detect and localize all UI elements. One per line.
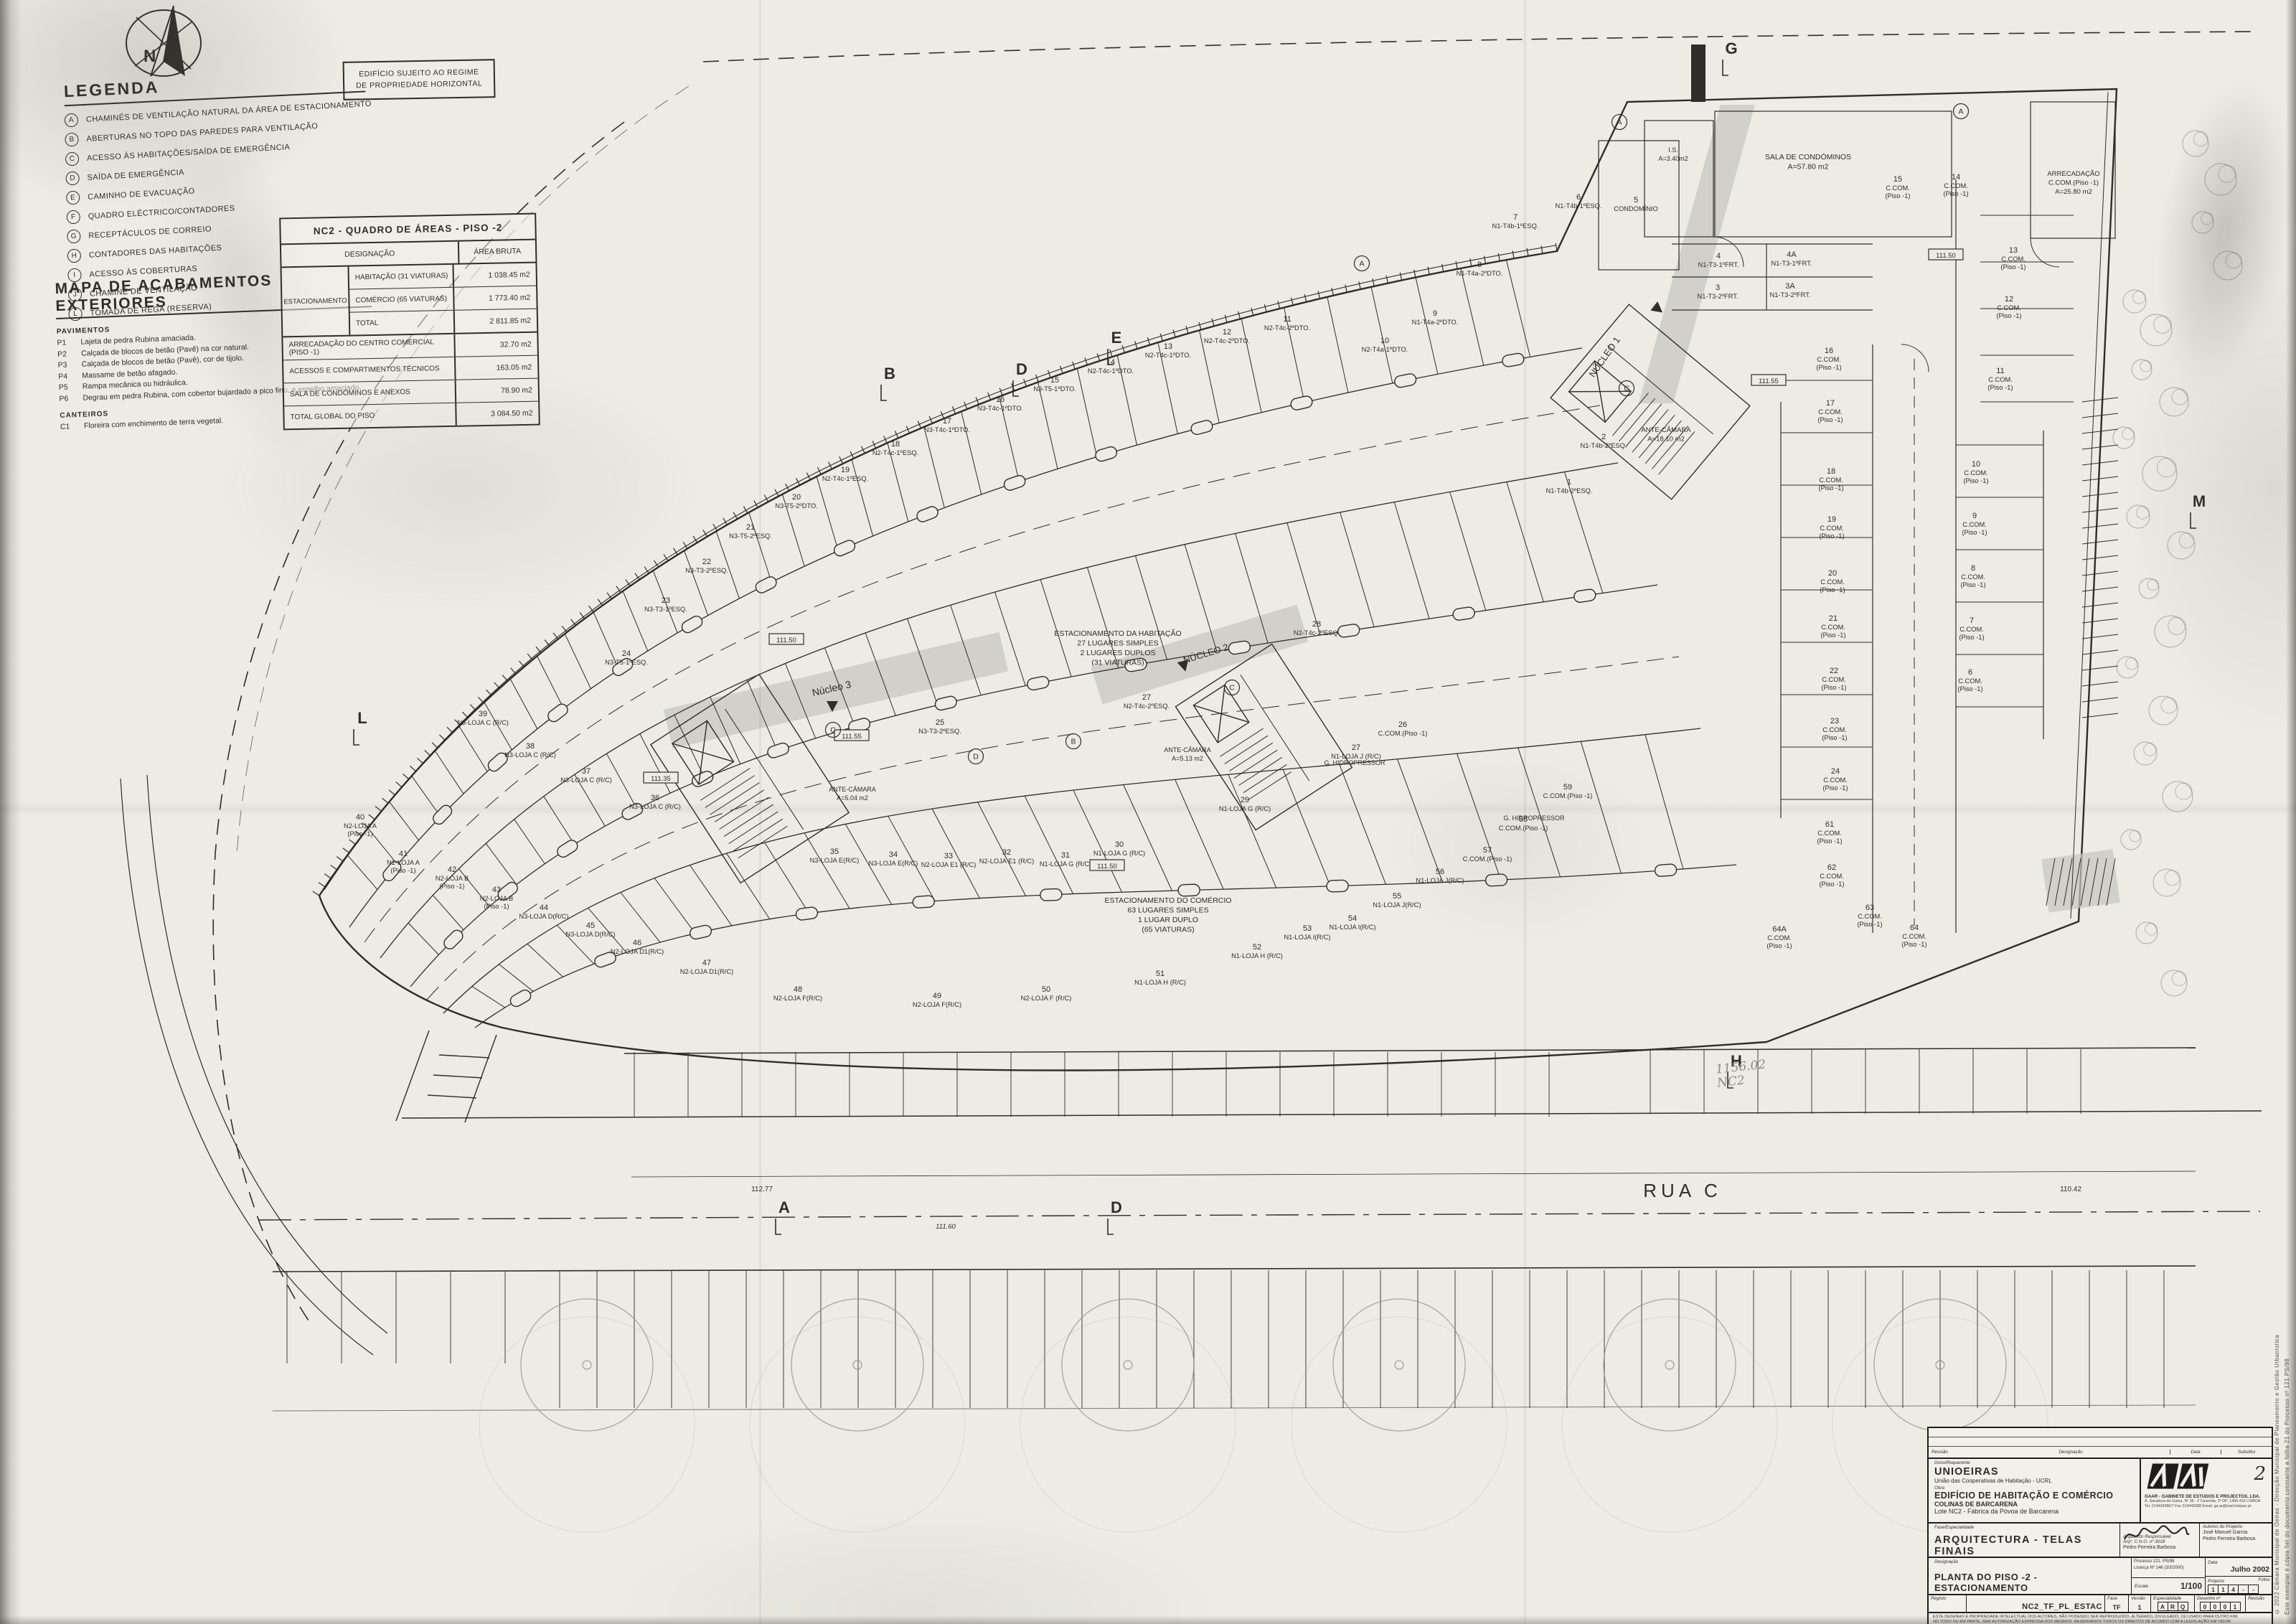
svg-text:C.COM.: C.COM. xyxy=(1858,913,1882,920)
legend-key-icon: H xyxy=(67,248,81,263)
copyright-disclaimer: ESTE DESENHO É PROPRIEDADE INTELECTUAL D… xyxy=(1929,1613,2272,1624)
svg-text:C.COM.: C.COM. xyxy=(1886,184,1910,192)
svg-text:42: 42 xyxy=(448,865,456,874)
stall-label: 56N1-LOJA J(R/C) xyxy=(1416,868,1464,884)
stall-label: 4AN1-T3-1ºFRT. xyxy=(1772,250,1812,267)
legend-item-text: CONTADORES DAS HABITAÇÕES xyxy=(89,243,222,259)
section-marker: G xyxy=(1723,39,1738,75)
responsavel-cell: Arquitecto Responsável Arqº, C.N.O. nº 3… xyxy=(2119,1524,2199,1557)
svg-text:N2-T4c-1ºDTO.: N2-T4c-1ºDTO. xyxy=(1088,367,1134,375)
stall-label: 50N2-LOJA F (R/C) xyxy=(1021,985,1072,1002)
revisao-mini-label: Revisão xyxy=(2248,1596,2269,1601)
svg-text:(Piso -1): (Piso -1) xyxy=(1820,586,1845,593)
plan-text: ANTE-CÂMARAA=18.10 m2 xyxy=(1641,426,1691,443)
stall-label: 41N2-LOJA A(Piso -1) xyxy=(387,850,420,874)
stall-label: 42N2-LOJA B(Piso -1) xyxy=(436,865,469,890)
desenho-label: Desenho nº xyxy=(2197,1596,2243,1601)
svg-text:N2-T4c-2ºESQ.: N2-T4c-2ºESQ. xyxy=(1124,703,1170,710)
svg-text:(65 VIATURAS): (65 VIATURAS) xyxy=(1142,926,1194,934)
svg-text:N2-T4c-2ºDTO.: N2-T4c-2ºDTO. xyxy=(1204,337,1250,344)
spot-elevation: 111.55 xyxy=(834,730,869,741)
svg-text:18: 18 xyxy=(1827,467,1835,476)
svg-text:31: 31 xyxy=(1061,851,1070,860)
svg-text:3: 3 xyxy=(1716,283,1720,292)
svg-text:N1-T4b-2ºESQ.: N1-T4b-2ºESQ. xyxy=(1581,442,1627,449)
svg-text:2: 2 xyxy=(1601,433,1606,441)
legend-key-icon: A xyxy=(64,113,78,128)
svg-text:40: 40 xyxy=(356,813,364,822)
spot-elevation: 111.50 xyxy=(769,634,804,644)
stall-label: 31N1-LOJA G (R/C) xyxy=(1040,851,1091,868)
stall-label: 8N1-T4a-2ºDTO. xyxy=(1457,261,1503,277)
obra-line1: EDIFÍCIO DE HABITAÇÃO E COMÉRCIO xyxy=(1934,1491,2134,1501)
svg-text:62: 62 xyxy=(1827,863,1836,872)
svg-text:54: 54 xyxy=(1348,914,1357,923)
stall-label: 21N3-T5-2ºESQ. xyxy=(729,523,772,540)
svg-text:A=57.80 m2: A=57.80 m2 xyxy=(1788,163,1829,172)
client-and-project: Dono/Requerente UNIOEIRAS União das Coop… xyxy=(1929,1459,2140,1522)
svg-text:34: 34 xyxy=(889,850,898,859)
svg-text:N2-T4c-1ºDTO.: N2-T4c-1ºDTO. xyxy=(1145,352,1191,359)
svg-text:1: 1 xyxy=(1567,478,1571,487)
svg-text:111.55: 111.55 xyxy=(1759,377,1779,385)
svg-text:(Piso -1): (Piso -1) xyxy=(1960,581,1985,588)
svg-text:N1-T4b-1ºESQ.: N1-T4b-1ºESQ. xyxy=(1556,202,1602,210)
svg-text:A=18.10 m2: A=18.10 m2 xyxy=(1647,436,1685,443)
legend-ref-circle: D xyxy=(969,749,984,764)
svg-text:48: 48 xyxy=(794,985,802,994)
svg-text:64A: 64A xyxy=(1772,925,1787,934)
stall-label: 23C.COM.(Piso -1) xyxy=(1822,717,1847,741)
svg-text:C.COM.: C.COM. xyxy=(1997,304,2021,311)
svg-text:55: 55 xyxy=(1393,892,1401,901)
svg-text:M: M xyxy=(2193,492,2206,510)
svg-text:19: 19 xyxy=(841,466,850,474)
street-and-sidewalk xyxy=(258,1048,2262,1411)
client-name: UNIOEIRAS xyxy=(1934,1466,2134,1478)
stall-label: 34N3-LOJA E(R/C) xyxy=(869,850,918,867)
svg-text:ESTACIONAMENTO DA HABITAÇÃO: ESTACIONAMENTO DA HABITAÇÃO xyxy=(1054,629,1181,638)
svg-text:C.COM.(Piso -1): C.COM.(Piso -1) xyxy=(1499,825,1548,832)
plan-text: G. HIDROPRESSOR xyxy=(1324,759,1385,766)
svg-text:6: 6 xyxy=(1968,668,1972,677)
obra-label: Obra xyxy=(1934,1485,2134,1491)
north-label: N xyxy=(143,47,156,66)
signature xyxy=(2122,1525,2191,1544)
svg-text:A: A xyxy=(778,1198,790,1216)
stall-label: 64AC.COM.(Piso -1) xyxy=(1766,925,1792,949)
legend-ref-circle: C xyxy=(1619,381,1634,396)
versao-value: 1 xyxy=(2131,1604,2148,1611)
svg-text:C.COM.: C.COM. xyxy=(1958,677,1982,685)
svg-text:N1-T4b-2ºESQ.: N1-T4b-2ºESQ. xyxy=(1546,487,1593,494)
licenca: Licença Nº 146 (3/3/2000) xyxy=(2134,1565,2203,1572)
client-subtitle: União das Cooperativas de Habitação - UC… xyxy=(1934,1478,2134,1484)
svg-text:C.COM.: C.COM. xyxy=(1817,830,1842,837)
disclaimer-line2: NO TODO OU EM PARTE, SEM AUTORIZAÇÃO EXP… xyxy=(1933,1620,2267,1624)
svg-text:37: 37 xyxy=(582,767,591,776)
stall-label: 24C.COM.(Piso -1) xyxy=(1822,767,1848,792)
svg-text:50: 50 xyxy=(1042,985,1050,994)
svg-text:10: 10 xyxy=(1380,337,1389,345)
svg-text:N2-LOJA F(R/C): N2-LOJA F(R/C) xyxy=(913,1001,961,1008)
finishes-key: P5 xyxy=(59,382,77,392)
projecto-digit: - xyxy=(2249,1585,2259,1594)
svg-text:N1-T3-1ºFRT.: N1-T3-1ºFRT. xyxy=(1772,260,1812,267)
desenho-digit: 1 xyxy=(2231,1602,2241,1611)
svg-text:N1-T3-2ºFRT.: N1-T3-2ºFRT. xyxy=(1698,293,1739,300)
svg-text:(Piso -1): (Piso -1) xyxy=(390,867,415,874)
svg-text:D: D xyxy=(973,753,979,761)
stall-label: 48N2-LOJA F(R/C) xyxy=(773,985,822,1002)
autor-1: José Manuel Garcia xyxy=(2203,1529,2269,1536)
svg-text:N1-LOJA J(R/C): N1-LOJA J(R/C) xyxy=(1373,901,1421,909)
svg-text:63: 63 xyxy=(1865,903,1874,912)
stall-label: 16N3-T4c-1ºDTO. xyxy=(977,395,1023,412)
projecto-digit: 1 xyxy=(2208,1585,2219,1594)
stall-label: 37N3-LOJA C (R/C) xyxy=(560,767,612,784)
client-label: Dono/Requerente xyxy=(1934,1460,2134,1465)
especialidade-label: Especialidade xyxy=(2153,1596,2192,1601)
svg-text:C.COM.: C.COM. xyxy=(1818,408,1843,416)
svg-text:C.COM.(Piso -1): C.COM.(Piso -1) xyxy=(1378,730,1428,737)
stall-label: 35N3-LOJA E(R/C) xyxy=(810,848,860,864)
svg-text:B: B xyxy=(1071,738,1076,746)
fase-mini-cell: Fase TF xyxy=(2104,1595,2128,1612)
fase-label: Fase/Especialidade xyxy=(1934,1525,2114,1530)
finishes-key: P6 xyxy=(59,393,77,403)
svg-text:51: 51 xyxy=(1156,970,1165,978)
svg-text:45: 45 xyxy=(586,921,595,930)
svg-text:4: 4 xyxy=(1716,252,1721,261)
svg-text:N2-LOJA F(R/C): N2-LOJA F(R/C) xyxy=(773,995,822,1002)
svg-text:N3-T3-2ºESQ.: N3-T3-2ºESQ. xyxy=(685,567,728,574)
folha-label: Folha xyxy=(2258,1577,2269,1582)
svg-text:13: 13 xyxy=(1164,342,1172,351)
rev-col-designacao: Designação xyxy=(1972,1450,2170,1455)
svg-text:N2-LOJA E1 (R/C): N2-LOJA E1 (R/C) xyxy=(921,861,976,868)
svg-text:12: 12 xyxy=(2005,295,2013,304)
svg-text:11: 11 xyxy=(1283,315,1291,324)
espec-digit: Q xyxy=(2178,1602,2188,1611)
surface-parking-bays xyxy=(287,1049,2164,1408)
svg-text:N3-T4c-1ºDTO.: N3-T4c-1ºDTO. xyxy=(977,405,1023,412)
svg-text:N2-LOJA A: N2-LOJA A xyxy=(387,859,420,866)
svg-text:24: 24 xyxy=(1831,767,1840,776)
firm-block: 2 GAAR - GABINETE DE ESTUDOS E PROJECTOS… xyxy=(2140,1459,2272,1522)
legend-key-icon: F xyxy=(66,210,80,225)
stall-label: 44N3-LOJA D(R/C) xyxy=(519,903,568,920)
stall-label: 9N1-T4a-2ºDTO. xyxy=(1412,309,1459,326)
svg-text:ANTE-CÂMARA: ANTE-CÂMARA xyxy=(1164,746,1211,754)
stall-label: 16C.COM.(Piso -1) xyxy=(1816,347,1841,371)
svg-text:N1-LOJA G (R/C): N1-LOJA G (R/C) xyxy=(1040,860,1091,868)
svg-text:23: 23 xyxy=(1830,717,1839,726)
svg-text:N2-T4c-1ºESQ.: N2-T4c-1ºESQ. xyxy=(872,449,918,456)
svg-text:29: 29 xyxy=(1241,796,1249,804)
plan-text: ARRECADAÇÃOC.COM.(Piso -1)A=25.80 m2 xyxy=(2047,170,2099,196)
svg-text:9: 9 xyxy=(1433,309,1437,318)
stall-label: 7N1-T4b-1ºESQ. xyxy=(1492,213,1539,230)
svg-text:(Piso -1): (Piso -1) xyxy=(1901,941,1926,948)
svg-text:39: 39 xyxy=(479,710,487,718)
svg-text:C.COM.: C.COM. xyxy=(1961,573,1985,581)
legend-key-icon: D xyxy=(65,172,80,186)
svg-text:N1-LOJA G (R/C): N1-LOJA G (R/C) xyxy=(1219,805,1271,812)
plan-text: ANTE-CÂMARAA=5.13 m2 xyxy=(1164,746,1211,762)
svg-text:I.S.: I.S. xyxy=(1668,146,1678,154)
svg-text:15: 15 xyxy=(1893,175,1902,184)
row-area: 2 811.85 m2 xyxy=(453,309,537,333)
designacao-cell: Designação PLANTA DO PISO -2 - ESTACIONA… xyxy=(1929,1558,2131,1594)
svg-text:N3-T5-2ºESQ.: N3-T5-2ºESQ. xyxy=(729,532,772,540)
svg-text:27 LUGARES SIMPLES: 27 LUGARES SIMPLES xyxy=(1077,639,1158,648)
svg-text:5: 5 xyxy=(1634,196,1638,205)
finishes-text: Rampa mecânica ou hidráulica. xyxy=(83,378,188,391)
svg-text:N1-T4a-2ºDTO.: N1-T4a-2ºDTO. xyxy=(1457,270,1503,277)
stall-label: 40N2-LOJA A(Piso -1) xyxy=(344,813,377,837)
stall-label: 38N3-LOJA C (R/C) xyxy=(504,742,556,759)
svg-text:C.COM.: C.COM. xyxy=(1959,626,1984,633)
svg-text:N3-LOJA D(R/C): N3-LOJA D(R/C) xyxy=(519,913,568,920)
svg-text:(Piso -1): (Piso -1) xyxy=(1822,784,1848,792)
svg-text:(Piso -1): (Piso -1) xyxy=(1817,416,1843,423)
desenho-cell: Desenho nº 0 0 0 1 xyxy=(2194,1595,2245,1612)
stall-label: 8C.COM.(Piso -1) xyxy=(1960,564,1985,588)
svg-text:G: G xyxy=(1725,39,1737,57)
legend-item-text: CAMINHO DE EVACUAÇÃO xyxy=(88,187,195,201)
svg-text:17: 17 xyxy=(1826,399,1835,408)
svg-text:47: 47 xyxy=(702,959,711,967)
svg-text:A=5.13 m2: A=5.13 m2 xyxy=(1172,755,1203,762)
svg-text:46: 46 xyxy=(633,939,641,947)
svg-text:(Piso -1): (Piso -1) xyxy=(1959,634,1984,641)
svg-text:N1-LOJA H (R/C): N1-LOJA H (R/C) xyxy=(1231,952,1283,959)
row-designacao: HABITAÇÃO (31 VIATURAS) xyxy=(349,265,453,289)
svg-text:N3-LOJA C (R/C): N3-LOJA C (R/C) xyxy=(457,719,509,726)
stall-label: 13C.COM.(Piso -1) xyxy=(2000,246,2026,271)
svg-text:32: 32 xyxy=(1002,848,1011,857)
svg-text:N2-LOJA A: N2-LOJA A xyxy=(344,822,377,830)
svg-text:N1-T4b-1ºESQ.: N1-T4b-1ºESQ. xyxy=(1492,222,1539,230)
stall-label: 14C.COM.(Piso -1) xyxy=(1943,173,1968,197)
svg-text:N2-T4c-2ºESQ.: N2-T4c-2ºESQ. xyxy=(1294,629,1340,637)
stall-label: 11N2-T4c-2ºDTO. xyxy=(1264,315,1310,332)
svg-text:N3-T3-2ºESQ.: N3-T3-2ºESQ. xyxy=(918,728,961,735)
aisle-guides xyxy=(364,405,1679,1000)
table-row: TOTAL2 811.85 m2 xyxy=(350,309,537,335)
svg-text:SALA DE CONDÓMINOS: SALA DE CONDÓMINOS xyxy=(1765,152,1851,161)
svg-text:18: 18 xyxy=(891,440,900,449)
table-row: HABITAÇÃO (31 VIATURAS)1 038.45 m2 xyxy=(349,263,537,290)
plan-text: ESTACIONAMENTO DO COMÉRCIO63 LUGARES SIM… xyxy=(1105,896,1232,934)
svg-text:53: 53 xyxy=(1303,924,1312,933)
stall-label: 61C.COM.(Piso -1) xyxy=(1817,820,1842,845)
section-marker: M xyxy=(2191,492,2206,528)
svg-text:(Piso -1): (Piso -1) xyxy=(1818,484,1843,492)
fase-cell: Fase/Especialidade ARQUITECTURA - TELAS … xyxy=(1929,1524,2119,1557)
stall-label: 12C.COM.(Piso -1) xyxy=(1996,295,2021,319)
spot-elevation: 111.50 xyxy=(1090,860,1124,870)
svg-text:N2-LOJA D1(R/C): N2-LOJA D1(R/C) xyxy=(680,968,733,975)
fase-value: ARQUITECTURA - TELAS FINAIS xyxy=(1934,1534,2114,1557)
svg-text:27: 27 xyxy=(1352,743,1360,752)
svg-text:N1-T4a-2ºDTO.: N1-T4a-2ºDTO. xyxy=(1412,319,1459,326)
svg-text:N3-LOJA C (R/C): N3-LOJA C (R/C) xyxy=(629,803,681,810)
svg-text:59: 59 xyxy=(1563,783,1572,792)
svg-text:E: E xyxy=(1111,329,1122,347)
firm-name: GAAR - GABINETE DE ESTUDOS E PROJECTOS, … xyxy=(2145,1494,2268,1499)
svg-text:19: 19 xyxy=(1827,515,1836,524)
svg-text:N1-T3-2ºFRT.: N1-T3-2ºFRT. xyxy=(1770,291,1811,299)
designacao-value: PLANTA DO PISO -2 - ESTACIONAMENTO xyxy=(1934,1572,2125,1593)
handwritten-note: 1156.02 NC2 xyxy=(1715,1058,1768,1090)
stall-label: 29N1-LOJA G (R/C) xyxy=(1219,796,1271,812)
stall-label: 6C.COM.(Piso -1) xyxy=(1957,668,1982,693)
svg-text:7: 7 xyxy=(1970,616,1974,625)
svg-text:N3-LOJA C (R/C): N3-LOJA C (R/C) xyxy=(560,776,612,784)
stall-label: 10C.COM.(Piso -1) xyxy=(1963,460,1988,484)
stall-label: 22C.COM.(Piso -1) xyxy=(1821,667,1846,691)
registo-value: NC2_TF_PL_ESTAC xyxy=(1966,1595,2104,1612)
svg-text:C: C xyxy=(830,726,836,735)
svg-text:(Piso -1): (Piso -1) xyxy=(1816,364,1841,371)
legend-item-text: QUADRO ELÉCTRICO/CONTADORES xyxy=(88,204,235,220)
row-area: 78.90 m2 xyxy=(455,379,539,403)
svg-text:3A: 3A xyxy=(1785,282,1795,291)
svg-text:(Piso -1): (Piso -1) xyxy=(439,883,464,890)
svg-text:C.COM.: C.COM. xyxy=(1819,477,1843,484)
firm-address: A. Sacadura de Gama, Nº 39 - 2 Cavenda, … xyxy=(2145,1499,2268,1504)
firm-contacts: Tel. 214442086/7 Fax 214442088 Email: ga… xyxy=(2145,1504,2268,1509)
svg-text:7: 7 xyxy=(1513,213,1518,222)
svg-text:61: 61 xyxy=(1825,820,1834,829)
dimension-text: 112.77 xyxy=(751,1186,773,1193)
svg-text:57: 57 xyxy=(1483,846,1492,855)
row-designacao: TOTAL xyxy=(350,311,454,335)
legend-key-icon: E xyxy=(66,191,80,205)
versao-mini-cell: Versão 1 xyxy=(2128,1595,2150,1612)
svg-text:N2-LOJA D1(R/C): N2-LOJA D1(R/C) xyxy=(611,948,664,955)
stall-label: 21C.COM.(Piso -1) xyxy=(1820,614,1845,639)
svg-text:C.COM.: C.COM. xyxy=(1820,525,1844,532)
row-area: 3 084.50 m2 xyxy=(455,402,539,426)
svg-text:41: 41 xyxy=(399,850,408,858)
svg-text:(Piso -1): (Piso -1) xyxy=(484,903,509,910)
area-table: NC2 - QUADRO DE ÁREAS - PISO -2 DESIGNAÇ… xyxy=(279,213,540,431)
stall-label: 39N3-LOJA C (R/C) xyxy=(457,710,509,726)
svg-text:(Piso -1): (Piso -1) xyxy=(1957,685,1982,693)
svg-text:A: A xyxy=(1958,108,1963,116)
svg-text:(Piso -1): (Piso -1) xyxy=(347,830,372,837)
data-cell: Data Julho 2002 xyxy=(2206,1558,2272,1577)
svg-text:C.COM.: C.COM. xyxy=(1902,933,1926,940)
svg-text:ESTACIONAMENTO DO COMÉRCIO: ESTACIONAMENTO DO COMÉRCIO xyxy=(1105,896,1232,905)
svg-text:C.COM.: C.COM. xyxy=(1964,469,1988,477)
svg-text:(Piso -1): (Piso -1) xyxy=(1962,529,1987,536)
spot-elevations: 111.50111.55111.35111.55111.50111.50111.… xyxy=(644,249,2081,1231)
stall-labels: 24N3-T5-1ºESQ.23N3-T3-1ºESQ.22N3-T3-2ºES… xyxy=(344,173,2026,1008)
svg-text:(Piso -1): (Piso -1) xyxy=(1820,632,1845,639)
finishes-key: P4 xyxy=(58,372,77,381)
stall-label: 45N3-LOJA D(R/C) xyxy=(565,921,615,938)
street-kerbs-left xyxy=(121,775,387,1355)
svg-text:26: 26 xyxy=(1398,721,1407,729)
projecto-digit: - xyxy=(2239,1585,2249,1594)
stall-label: 9C.COM.(Piso -1) xyxy=(1962,512,1987,536)
svg-text:RUA C: RUA C xyxy=(1643,1180,1721,1201)
row-area: 1 038.45 m2 xyxy=(452,263,536,287)
row-area: 163.05 m2 xyxy=(454,356,538,380)
svg-text:14: 14 xyxy=(1952,173,1960,182)
sheet-number: 2 xyxy=(2254,1463,2266,1485)
dimension-text: 110.42 xyxy=(2060,1186,2081,1193)
svg-text:C.COM.: C.COM. xyxy=(1767,934,1792,942)
right-wing-interior xyxy=(1599,92,2115,933)
svg-text:D: D xyxy=(1016,360,1027,378)
finishes-key: C1 xyxy=(60,421,79,431)
espec-digit: A xyxy=(2158,1602,2168,1611)
obra-line2: COLINAS DE BARCARENA xyxy=(1934,1501,2134,1508)
plan-texts: SALA DE CONDÓMINOSA=57.80 m2I.S.A=3.40m2… xyxy=(811,146,2100,1201)
svg-text:4A: 4A xyxy=(1787,250,1797,259)
legend-ref-circle: B xyxy=(1066,734,1081,749)
estacionamento-group: ESTACIONAMENTO HABITAÇÃO (31 VIATURAS)1 … xyxy=(282,263,537,338)
svg-text:111.50: 111.50 xyxy=(776,637,796,644)
stall-label: 57C.COM.(Piso -1) xyxy=(1463,846,1512,863)
section-marker: L xyxy=(354,709,367,745)
title-block: Revisão Designação Data Substitui Dono/R… xyxy=(1927,1427,2273,1624)
svg-text:36: 36 xyxy=(651,794,659,802)
svg-text:N3-T5-1ºDTO.: N3-T5-1ºDTO. xyxy=(1033,385,1076,393)
finishes-key: P3 xyxy=(57,360,76,370)
svg-text:111.35: 111.35 xyxy=(651,775,671,783)
svg-text:N2-LOJA F (R/C): N2-LOJA F (R/C) xyxy=(1021,995,1072,1002)
svg-text:C.COM.(Piso -1): C.COM.(Piso -1) xyxy=(1463,855,1512,863)
svg-text:A: A xyxy=(1359,260,1364,268)
svg-text:N1-LOJA H (R/C): N1-LOJA H (R/C) xyxy=(1134,979,1186,986)
column-markers xyxy=(381,352,1677,1008)
svg-text:(Piso -1): (Piso -1) xyxy=(2000,263,2026,271)
svg-text:6: 6 xyxy=(1576,193,1581,202)
svg-text:11: 11 xyxy=(1996,367,2004,375)
desenho-digit: 0 xyxy=(2211,1602,2221,1611)
svg-text:(Piso -1): (Piso -1) xyxy=(1963,477,1988,484)
svg-text:C.COM.(Piso -1): C.COM.(Piso -1) xyxy=(1543,792,1593,799)
stall-label: 19N2-T4c-1ºESQ. xyxy=(822,466,868,482)
svg-text:N1-LOJA I(R/C): N1-LOJA I(R/C) xyxy=(1329,924,1375,931)
svg-text:(Piso -1): (Piso -1) xyxy=(1821,684,1846,691)
stall-label: 1N1-T4b-2ºESQ. xyxy=(1546,478,1593,494)
svg-text:25: 25 xyxy=(936,718,944,727)
svg-text:(Piso -1): (Piso -1) xyxy=(1819,532,1844,540)
svg-text:C.COM.: C.COM. xyxy=(1822,726,1847,733)
rev-col-revisao: Revisão xyxy=(1929,1450,1972,1455)
svg-text:23: 23 xyxy=(662,596,670,605)
especialidade-cell: Especialidade A R Q xyxy=(2150,1595,2194,1612)
right-wing-stall-lines xyxy=(1781,215,2074,799)
svg-text:52: 52 xyxy=(1253,943,1261,952)
svg-text:8: 8 xyxy=(1971,564,1975,573)
svg-text:(Piso -1): (Piso -1) xyxy=(1996,312,2021,319)
legend-key-icon: B xyxy=(65,133,79,147)
svg-text:C.COM.: C.COM. xyxy=(1823,776,1848,784)
stall-label: 25N3-T3-2ºESQ. xyxy=(918,718,961,735)
rev-col-data: Data xyxy=(2170,1450,2221,1455)
svg-text:24: 24 xyxy=(622,649,631,658)
stall-label: 32N2-LOJA E1 (R/C) xyxy=(979,848,1034,865)
svg-text:N2-T4c-1ºESQ.: N2-T4c-1ºESQ. xyxy=(822,475,868,482)
